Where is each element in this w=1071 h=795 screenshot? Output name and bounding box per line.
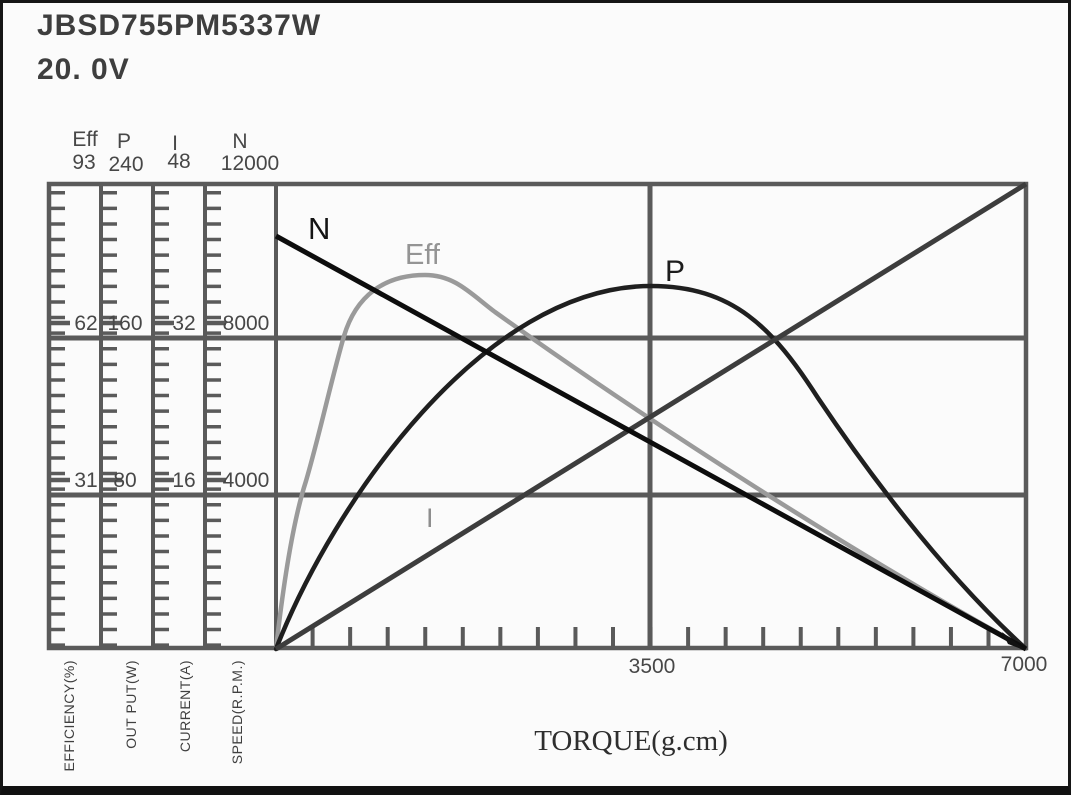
motor-performance-chart-page: JBSD755PM5337W 20. 0V Eff P I N 93 240 4… (0, 0, 1071, 795)
scale-mid-i: 32 (172, 312, 195, 336)
scale-minor-ticks (58, 191, 214, 648)
scale-name-eff: Eff (72, 128, 97, 152)
scale-max-n: 12000 (221, 152, 279, 176)
scale-mid-n: 8000 (223, 312, 270, 336)
x-axis-title: TORQUE(g.cm) (534, 725, 728, 758)
scale-mid-p: 160 (107, 312, 142, 336)
scale-low-eff: 31 (74, 469, 97, 493)
efficiency-curve-label: Eff (405, 239, 440, 272)
scale-major-ticks (49, 323, 226, 480)
axis-label-output: OUT PUT(W) (123, 660, 139, 749)
scale-max-i: 48 (167, 150, 190, 174)
scale-max-p: 240 (108, 153, 143, 177)
axis-label-current: CURRENT(A) (177, 660, 193, 752)
scale-name-n: N (232, 130, 247, 154)
scale-mid-eff: 62 (74, 312, 97, 336)
scale-low-i: 16 (172, 469, 195, 493)
chart-canvas (3, 3, 1071, 795)
plot-border (49, 184, 1026, 648)
axis-label-speed: SPEED(R.P.M.) (229, 660, 245, 764)
axis-label-efficiency: EFFICIENCY(%) (61, 660, 77, 772)
scale-low-n: 4000 (223, 469, 270, 493)
model-title: JBSD755PM5337W (37, 9, 321, 43)
scale-low-p: 80 (113, 469, 136, 493)
power-curve-label: P (665, 255, 685, 289)
gridlines (49, 184, 1026, 648)
voltage-label: 20. 0V (37, 53, 130, 87)
scale-axis-lines (101, 184, 276, 648)
scale-name-p: P (117, 130, 131, 154)
x-tick-3500: 3500 (629, 655, 676, 679)
current-curve-label: I (426, 503, 434, 534)
speed-curve-label: N (308, 211, 330, 247)
x-tick-7000: 7000 (1001, 653, 1048, 677)
scale-max-eff: 93 (72, 151, 95, 175)
